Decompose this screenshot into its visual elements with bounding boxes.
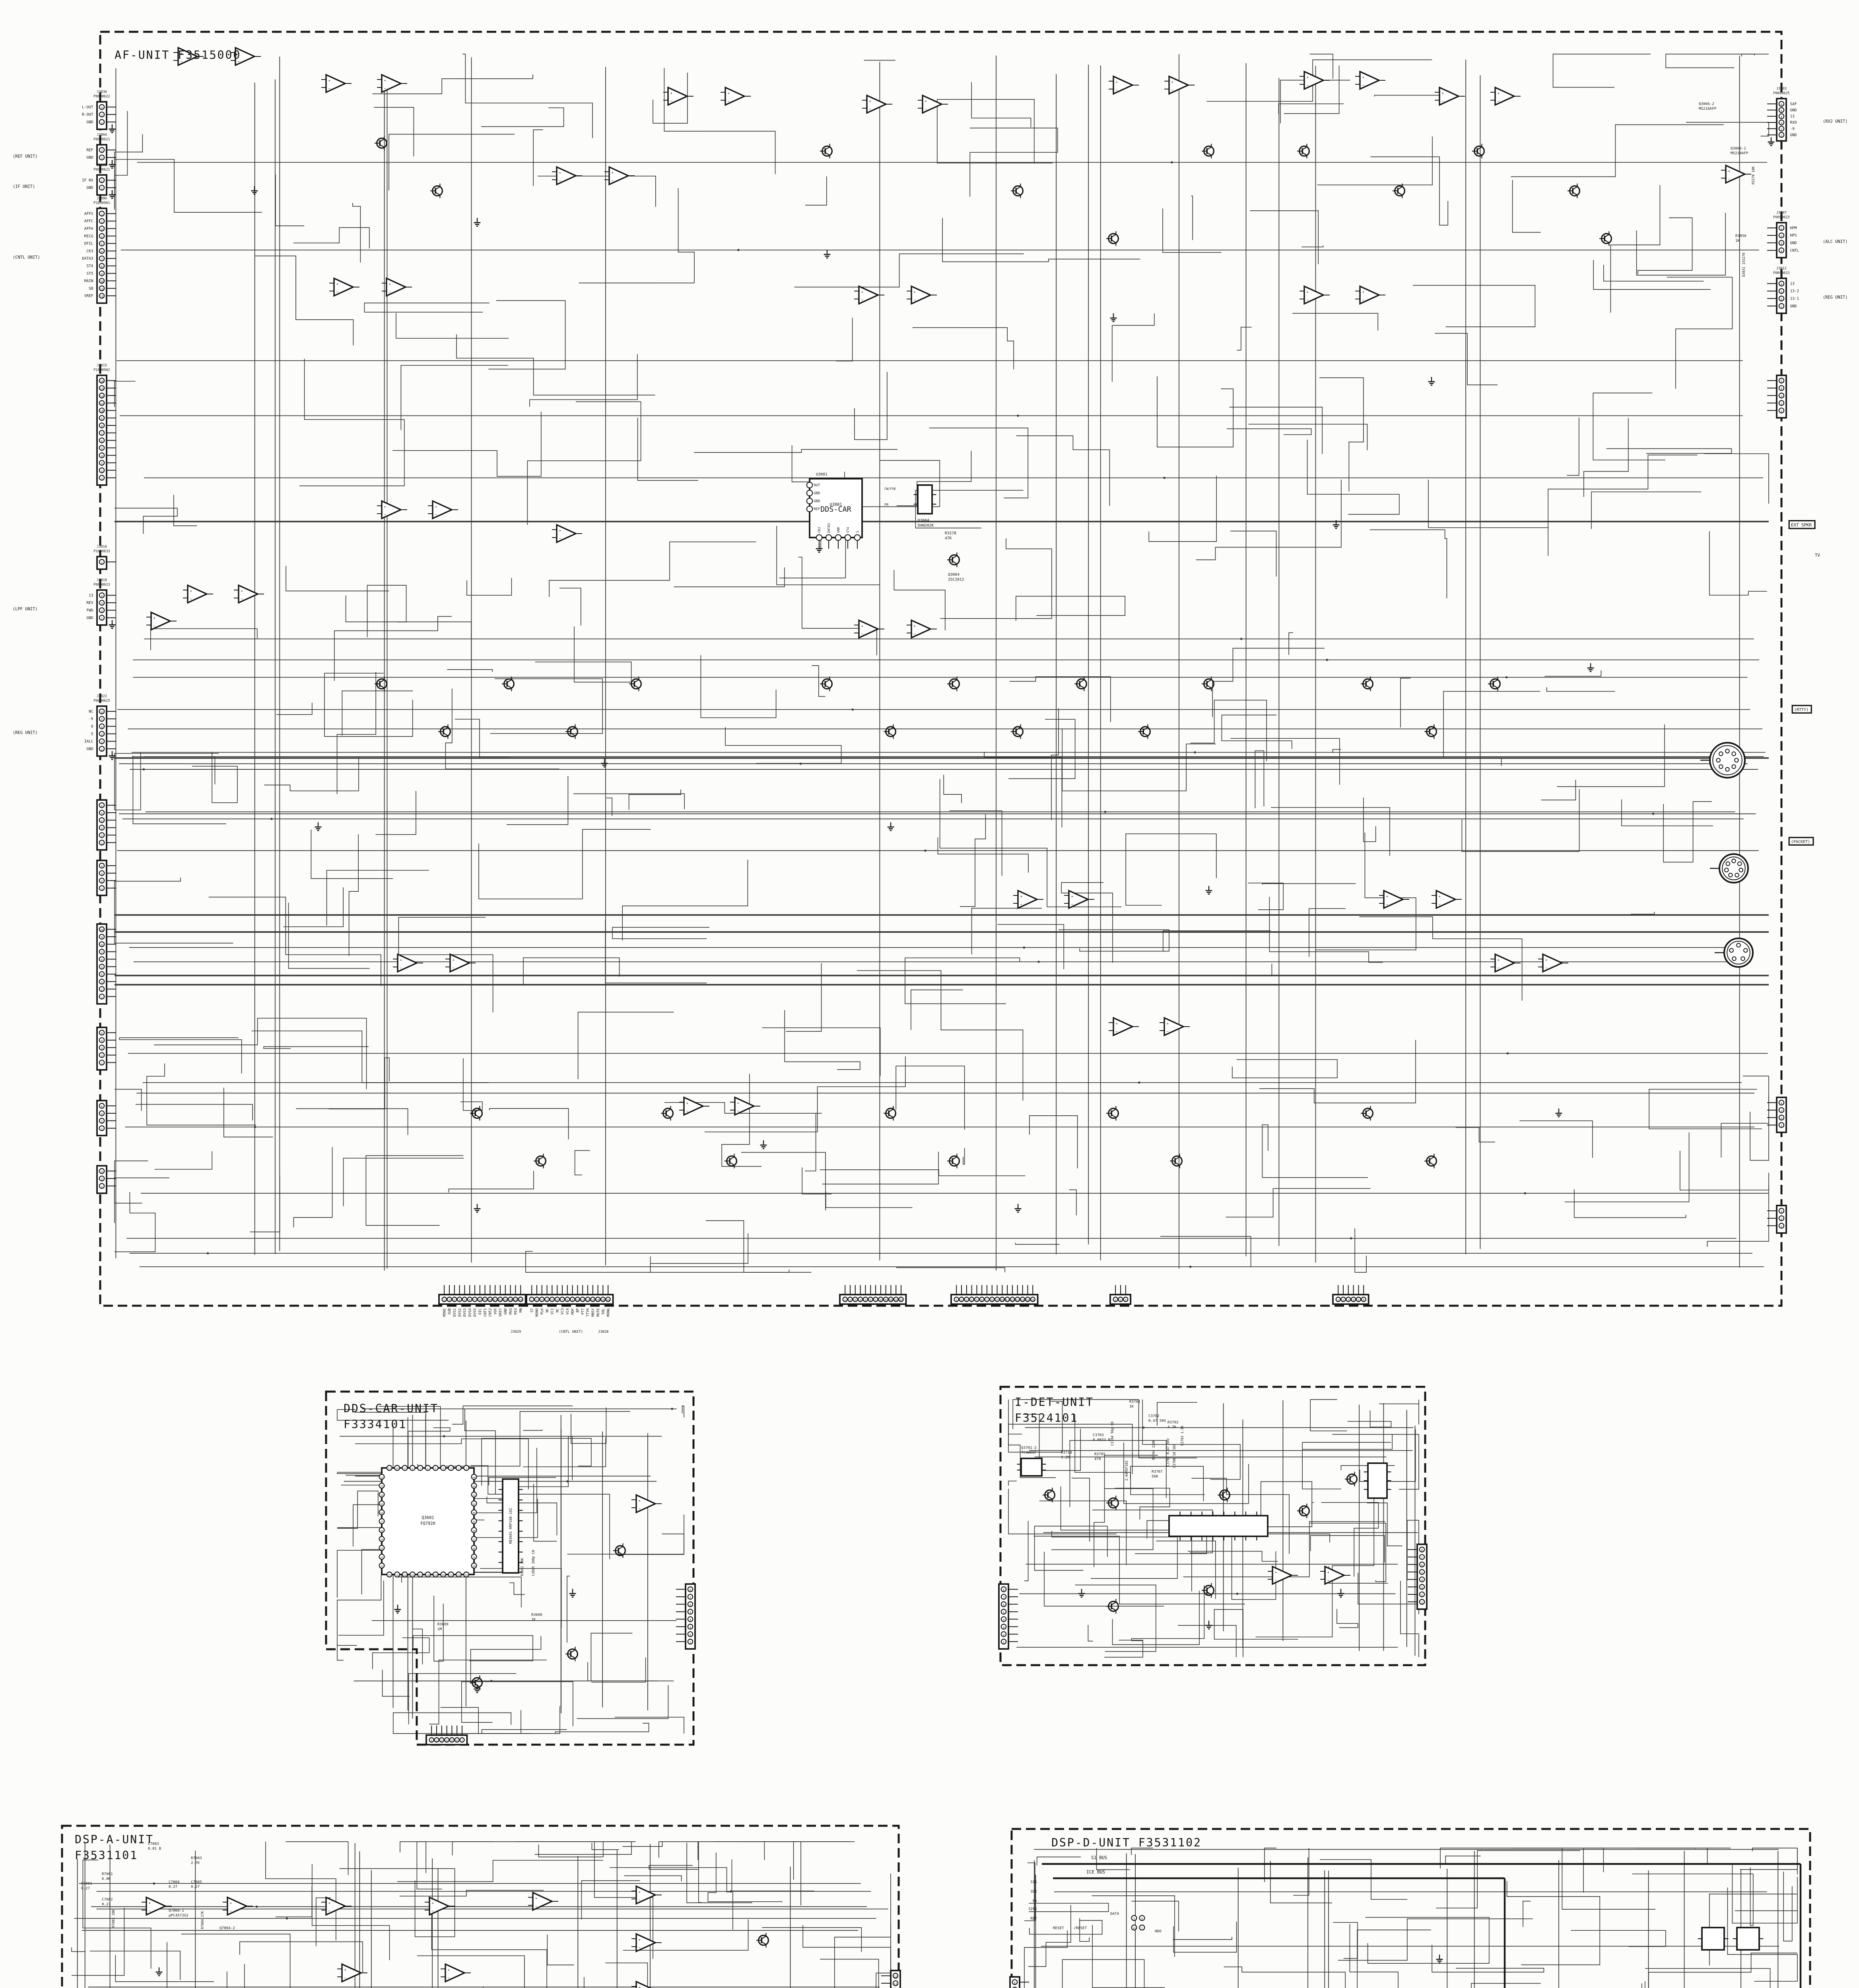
wire-run <box>447 670 492 672</box>
wire-run <box>698 1842 701 1903</box>
wire-run <box>1401 1581 1419 1657</box>
ic <box>1698 1928 1729 1950</box>
label-text: 2 <box>458 1468 459 1470</box>
label-text: 2 <box>1781 1117 1782 1120</box>
pin-label: CNT2 <box>489 1308 493 1316</box>
label-text: 1 <box>101 477 103 480</box>
connector-part: P0090621 <box>93 138 110 142</box>
wire-run <box>617 1541 684 1555</box>
wire-run <box>588 1662 674 1681</box>
label-text: 6 <box>1421 1564 1423 1567</box>
unit-dsp-a-unit: 1211109876543211234567891011121314151617… <box>62 1826 900 1988</box>
wire-run <box>151 629 257 650</box>
label-text: 15 <box>1026 1299 1030 1302</box>
pin-label: 13-2 <box>1790 289 1799 293</box>
wire-run <box>1310 1400 1347 1431</box>
label-text: 1 <box>1003 1641 1004 1644</box>
label-text: 4 <box>446 1739 448 1742</box>
label-text: 14 <box>100 380 103 383</box>
vertical-label: R3703 1.5K <box>1180 1425 1184 1446</box>
ic-body <box>918 485 932 514</box>
pin-label: NC <box>556 1308 559 1312</box>
label-text: 1 <box>101 121 103 124</box>
wire-run <box>1584 418 1628 497</box>
label-line: C7002 <box>102 1897 113 1902</box>
label-text: 8 <box>991 1299 993 1302</box>
label-text: + <box>1498 92 1500 96</box>
label-text: 6 <box>981 1299 983 1302</box>
wire-run <box>1547 687 1615 691</box>
label-text: 34 <box>473 1565 476 1568</box>
connector-part: P1090633 <box>93 549 110 553</box>
label-text: + <box>1439 895 1441 899</box>
junction-dot <box>1189 1266 1192 1268</box>
label-text: 4 <box>971 1299 973 1302</box>
junction-dot <box>1524 1192 1526 1194</box>
label-text: 37 <box>473 1539 476 1541</box>
wire-run <box>1511 125 1724 177</box>
wire-run <box>538 176 656 207</box>
jack-pin <box>1735 758 1739 762</box>
wire-run <box>1740 1848 1797 1870</box>
label-text: 8 <box>1003 1588 1004 1592</box>
label-text: 8 <box>567 1299 568 1302</box>
label-text: 7 <box>1141 1927 1143 1930</box>
label-text: 12 <box>499 1299 502 1302</box>
label-text: − <box>1307 299 1309 303</box>
wire-run <box>1606 448 1732 453</box>
label-text: 5 <box>101 966 103 969</box>
wire-run <box>1413 285 1535 327</box>
component-label: C3605 100p CH <box>531 1550 535 1576</box>
jack-pin <box>1732 765 1736 769</box>
wire-run <box>1248 883 1283 910</box>
wire-run <box>1666 54 1754 68</box>
wire-run <box>334 616 452 681</box>
wire-run <box>255 256 353 346</box>
component-label: R37024.7K <box>1167 1420 1179 1429</box>
pin-label: SKEY <box>499 1308 503 1317</box>
wire-run <box>1224 1967 1346 1988</box>
jack-pin <box>1729 873 1733 877</box>
label-line: R3707 <box>1152 1470 1163 1474</box>
unit-af-unit: OUTGNDGNDREFCK3DATA3GNDST4SU3001DDS-CAR3… <box>13 32 1848 1334</box>
wire-run <box>1132 1901 1179 1932</box>
label-text: + <box>432 1902 434 1906</box>
label-text: 2 <box>101 1178 103 1181</box>
label-text: − <box>1545 967 1547 971</box>
label-line: C7005 <box>191 1880 202 1884</box>
label-text: 1 <box>1781 1124 1782 1128</box>
ic-pin-label: OUT <box>814 483 820 487</box>
connector-J3029: 1MONI2SUB3DVS14DVS25DVS36DVS47DVS58DIC9C… <box>439 1285 526 1334</box>
label-text: 8 <box>412 1468 414 1470</box>
label-line: R3710 <box>1061 1450 1072 1455</box>
label-text: 27 <box>419 1574 422 1576</box>
junction-dot <box>153 1882 155 1885</box>
label-text: + <box>1545 959 1547 963</box>
label-text: 1 <box>101 187 103 190</box>
wire-run <box>785 1010 860 1070</box>
wire-run <box>740 1842 801 1905</box>
label-text: 6 <box>1781 103 1782 106</box>
connector: 4321 <box>97 1101 116 1136</box>
label-text: + <box>241 590 243 594</box>
label-text: 5 <box>1358 1299 1360 1302</box>
label-text: + <box>336 283 338 287</box>
ic-body <box>1737 1928 1759 1950</box>
label-text: 6 <box>1003 1604 1004 1607</box>
wire-run <box>1374 95 1443 97</box>
label-text: 5 <box>101 1032 103 1035</box>
wire-run <box>1039 1501 1127 1565</box>
wire-run <box>1632 1868 1753 1926</box>
wire-run <box>324 673 413 736</box>
wire-run <box>911 990 963 1030</box>
label-text: 3 <box>1781 395 1782 398</box>
pin-label: VOX <box>493 1308 497 1315</box>
component-label: C70020.27 <box>102 1897 113 1906</box>
wire-run <box>311 829 393 878</box>
pin-label: VC1 <box>551 1308 555 1314</box>
label-line: 2.64MSF102 <box>1125 1461 1129 1481</box>
label-line: 2.7K <box>191 1861 200 1865</box>
label-text: 40 <box>473 1512 476 1514</box>
ic-ref: Q3601 <box>422 1515 434 1520</box>
component-label: Q3066-2M5218AFP <box>1699 102 1717 111</box>
label-text: 4 <box>101 1105 103 1108</box>
label-text: 8 <box>1014 1981 1016 1984</box>
label-text: − <box>639 1507 641 1511</box>
label-line: Q3701-2 <box>1021 1446 1037 1450</box>
label-text: 4 <box>459 1299 460 1302</box>
junction-dot <box>1236 1593 1239 1595</box>
connector: 4321 <box>97 860 116 895</box>
wire-run <box>1507 1881 1600 1965</box>
wire-mesh <box>115 54 1769 1272</box>
label-line: M5218AFP <box>1731 151 1748 155</box>
wire-run <box>115 1089 142 1111</box>
pin-label: DVS1 <box>453 1308 457 1316</box>
wire-run <box>167 1942 272 1988</box>
label-text: + <box>639 1986 641 1988</box>
wire-run <box>1752 1848 1797 1874</box>
wire-run <box>1173 1922 1236 1952</box>
label-text: 8 <box>1421 1549 1423 1552</box>
label-text: 13 <box>1016 1299 1019 1302</box>
wire-run <box>1072 1478 1090 1542</box>
pin <box>835 535 841 540</box>
label-text: 14 <box>381 1494 383 1497</box>
ic-name: FQ7920 <box>420 1521 435 1526</box>
label-text: + <box>400 959 402 963</box>
wire-run <box>245 1964 344 1988</box>
jack-pin <box>1739 868 1743 872</box>
ic: RB3601 RRP16B-10Z <box>499 1479 523 1573</box>
label-text: + <box>1362 76 1364 80</box>
pin-label: DIC <box>478 1308 482 1314</box>
junction-dot <box>1240 638 1243 640</box>
label-line: 47K <box>945 536 952 540</box>
label-text: 42 <box>473 1494 476 1497</box>
wire-run <box>803 1925 891 1988</box>
label-text: + <box>1498 959 1500 963</box>
label-text: 14 <box>1021 1299 1024 1302</box>
wire-run <box>1292 313 1378 330</box>
label-line: Q3066-2 <box>1699 102 1714 106</box>
wire-run <box>659 1842 855 1858</box>
component-label: R370756K <box>1152 1470 1163 1479</box>
pin-label: GND <box>1790 133 1797 137</box>
label-text: 2 <box>101 179 103 182</box>
wire-run <box>523 1430 542 1431</box>
wire-run <box>741 1152 826 1210</box>
label-text: 4 <box>101 454 103 458</box>
wire-run <box>299 359 404 486</box>
component-label: C70050.27 <box>191 1880 202 1889</box>
wire-run <box>940 779 1122 907</box>
connector-ref: J3012 <box>1776 267 1787 271</box>
wire-run <box>337 1575 381 1646</box>
label-line: R3705 <box>1094 1452 1105 1456</box>
junction-dot <box>256 1906 258 1908</box>
label-text: + <box>1020 895 1022 899</box>
label-text: 1 <box>101 1062 103 1065</box>
vertical-label: R3270 10K <box>1751 166 1755 184</box>
label-text: 18 <box>381 1530 383 1532</box>
label-text: + <box>1116 81 1118 85</box>
vertical-label: R3704 220K <box>1152 1440 1156 1460</box>
wire-run <box>1622 800 1713 826</box>
label-text: + <box>1275 1571 1277 1575</box>
wire-run <box>1705 1848 1707 1864</box>
connector-J3016: 1J3016P1090633 <box>93 545 116 569</box>
wire-run <box>786 963 821 1031</box>
label-text: 3 <box>1781 242 1782 245</box>
label-text: 14 <box>596 1299 600 1302</box>
label-text: 11 <box>494 1299 497 1302</box>
wire-run <box>1645 1981 1753 1988</box>
component-label: DATA <box>1110 1912 1119 1916</box>
wire-run <box>433 1710 531 1734</box>
label-text: + <box>1071 895 1073 899</box>
label-text: + <box>230 1902 232 1906</box>
pin-label: CNTL <box>1790 248 1799 253</box>
label-text: 2 <box>1781 128 1782 131</box>
wire-run <box>349 834 359 956</box>
wire-run <box>805 1113 816 1171</box>
component-label: Q7004-1μPC4572G2 <box>169 1908 188 1918</box>
wire-run <box>1544 670 1601 676</box>
label-text: 11 <box>894 1982 897 1986</box>
wire-run <box>664 68 775 174</box>
wire-run <box>375 791 416 835</box>
pin-label: MONI <box>443 1308 447 1316</box>
label-text: 12 <box>1011 1299 1014 1302</box>
wire-run <box>132 757 215 784</box>
af-unit-title: AF-UNIT F3515000 <box>115 48 241 64</box>
wire-run <box>1333 1922 1358 1958</box>
label-text: − <box>1439 903 1441 907</box>
wire-run <box>555 1723 649 1734</box>
ic-pin-label: ST4 <box>846 527 850 533</box>
label-text: 12 <box>100 395 103 398</box>
jack-pin <box>1729 948 1733 952</box>
junction-dot <box>143 768 145 771</box>
junction-dot <box>1023 946 1026 949</box>
wire-run <box>1227 429 1311 435</box>
label-line: FM <box>884 503 888 507</box>
label-text: 5 <box>976 1299 978 1302</box>
label-text: + <box>1442 92 1444 96</box>
pin-label: SB <box>89 286 93 291</box>
label-text: − <box>432 1910 434 1914</box>
wire-run <box>1157 376 1233 447</box>
wire-run <box>441 1707 479 1734</box>
label-text: 7 <box>101 432 103 435</box>
junction-dot <box>1138 1081 1140 1084</box>
wire-run <box>527 402 641 525</box>
wire-run <box>1364 798 1376 842</box>
unit-dsp-d-unit: Q7101μPD77016GM8765432165432187654321+−+… <box>1010 1829 1810 1988</box>
label-text: 1 <box>101 1128 103 1131</box>
wire-run <box>1191 196 1193 240</box>
junction-dot <box>270 818 273 820</box>
connector-ref: J3036 <box>97 90 107 94</box>
wire-run <box>147 1064 256 1125</box>
wire-run <box>1092 1925 1165 1988</box>
label-text: 1 <box>1337 1299 1339 1302</box>
pin-label: ST <box>530 1308 534 1312</box>
jack-pin <box>1732 957 1736 961</box>
label-text: 8 <box>101 265 103 268</box>
connector-ref: J3005 <box>97 163 107 167</box>
label-text: 8 <box>101 425 103 428</box>
wire-run <box>1301 245 1323 247</box>
connector-ref: J3006 <box>97 197 107 201</box>
label-text: 4 <box>860 1299 861 1302</box>
label-text: 2 <box>849 1299 851 1302</box>
ic <box>1169 1512 1268 1541</box>
wire-run <box>963 1148 965 1164</box>
label-text: 5 <box>464 1299 466 1302</box>
label-text: 2 <box>101 114 103 117</box>
label-line: REF <box>1030 1916 1037 1921</box>
label-text: 5 <box>101 447 103 450</box>
wire-run <box>488 301 565 369</box>
wire-run <box>1513 180 1541 232</box>
connector-J3018: 4133REV2FWD1GNDJ3018P0090623(LPF UNIT) <box>13 579 116 629</box>
component-label: SI1 <box>1030 1880 1037 1884</box>
wire-run <box>136 1105 253 1120</box>
label-text: 4 <box>101 973 103 977</box>
label-line: DAN202K <box>918 523 934 528</box>
label-text: − <box>861 633 863 637</box>
junction-dot <box>851 709 854 711</box>
wire-run <box>293 1147 332 1227</box>
label-text: 5 <box>865 1299 866 1302</box>
junction-dot <box>1037 961 1040 963</box>
connector: 321 <box>97 1166 116 1193</box>
label-text: 3 <box>454 1299 455 1302</box>
pin-label: GND <box>86 155 93 160</box>
label-text: 2 <box>101 835 103 838</box>
vertical-label: R7002 10K <box>111 1909 115 1928</box>
wire-run <box>481 108 564 126</box>
connector-ref: J3004 <box>97 133 107 137</box>
label-text: 16 <box>1031 1299 1035 1302</box>
label-text: 1 <box>1781 1225 1782 1228</box>
connector: 321 <box>1767 1206 1786 1233</box>
pin-label: VC3 <box>561 1308 565 1314</box>
ic-pin-label: GND <box>837 527 840 533</box>
wire-run <box>535 627 631 682</box>
ic-pin-label: S <box>856 531 859 533</box>
label-text: 3 <box>101 981 103 984</box>
pin-label: MUTE <box>596 1308 600 1316</box>
pin-label: BP <box>576 1308 580 1312</box>
label-text: 3 <box>101 106 103 109</box>
component-label: C70010.27 <box>81 1881 92 1891</box>
junction-dot <box>671 1408 673 1410</box>
label-text: 1 <box>101 887 103 891</box>
label-text: 3 <box>101 1170 103 1173</box>
label-text: + <box>869 100 871 104</box>
label-text: − <box>1116 89 1118 93</box>
label-text: 4 <box>101 1039 103 1043</box>
jack-pin <box>1725 767 1729 771</box>
pin-label: HPM <box>1790 226 1797 230</box>
label-text: 9 <box>101 273 103 276</box>
wire-run <box>396 313 509 338</box>
label-text: 9 <box>101 417 103 420</box>
wire-run <box>337 1491 378 1528</box>
label-text: − <box>612 179 614 183</box>
label-line: 56K <box>1152 1474 1158 1479</box>
wire-run <box>490 679 602 734</box>
vertical-label: C3706 10 16V <box>1172 1444 1176 1468</box>
label-line: C7004 <box>169 1880 180 1884</box>
label-line: (RTTY) <box>1794 708 1808 712</box>
wire-run <box>227 1971 297 1988</box>
label-text: 1 <box>101 213 103 216</box>
external-unit-label: (CNTL UNIT) <box>13 255 40 260</box>
vertical-label: C3605 100p CH <box>531 1550 535 1576</box>
component-label: FM <box>884 503 888 507</box>
pin <box>845 535 851 540</box>
connector-J3036: 3L-OUT2R-OUT1GNDJ3036P0090622 <box>82 90 116 133</box>
label-line: 32FS <box>1028 1907 1037 1911</box>
label-text: + <box>344 1969 346 1972</box>
pin-label: MVU <box>509 1308 513 1314</box>
label-text: 41 <box>473 1503 476 1506</box>
wire-run <box>805 177 827 205</box>
label-text: 3 <box>101 733 103 736</box>
wire-run <box>296 1109 408 1135</box>
label-text: 16 <box>607 1299 610 1302</box>
wire-run <box>1637 213 1726 275</box>
wire-run <box>490 1109 569 1140</box>
wire-run <box>289 903 370 968</box>
ic-Q3601: 1234567891011121314151617181920212223242… <box>379 1466 477 1577</box>
component-label: Q7004-2 <box>220 1926 235 1930</box>
wire-run <box>694 449 897 452</box>
unit-i-det-unit: 8765432187654321+−+−R37011KC37020.47 50V… <box>999 1387 1427 1665</box>
label-text: − <box>728 100 730 104</box>
junction-dot <box>1194 751 1196 753</box>
wire-run <box>855 372 887 439</box>
label-text: − <box>384 87 386 91</box>
